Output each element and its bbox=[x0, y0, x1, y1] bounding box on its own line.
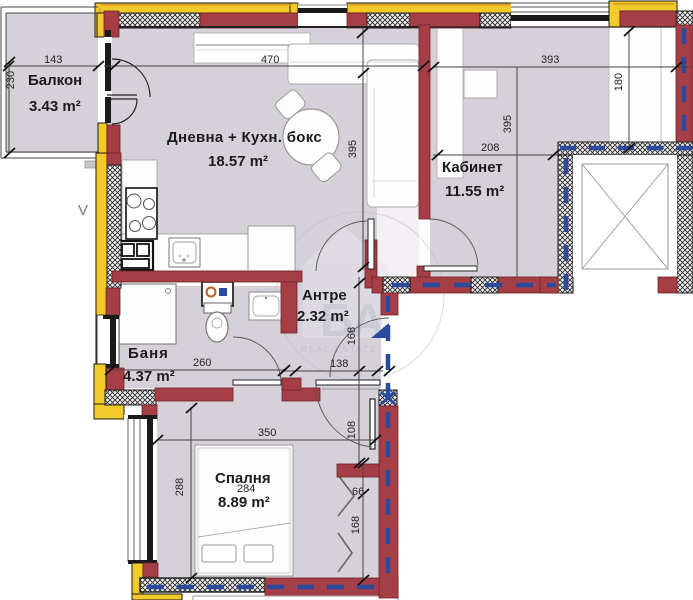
svg-text:393: 393 bbox=[541, 54, 559, 66]
svg-text:168: 168 bbox=[350, 516, 362, 534]
svg-text:11.55 m²: 11.55 m² bbox=[445, 183, 504, 200]
svg-text:395: 395 bbox=[347, 140, 359, 158]
svg-text:66: 66 bbox=[352, 486, 364, 498]
svg-text:260: 260 bbox=[193, 357, 211, 369]
svg-text:208: 208 bbox=[481, 142, 499, 154]
svg-text:168: 168 bbox=[346, 327, 358, 345]
svg-text:143: 143 bbox=[44, 54, 62, 66]
svg-text:230: 230 bbox=[5, 71, 17, 89]
svg-text:Антре: Антре bbox=[302, 287, 347, 304]
svg-text:Кабинет: Кабинет bbox=[442, 159, 503, 176]
svg-text:350: 350 bbox=[258, 427, 276, 439]
svg-text:Балкон: Балкон bbox=[28, 72, 82, 89]
svg-text:Дневна + Кухн. бокс: Дневна + Кухн. бокс bbox=[167, 129, 322, 146]
svg-text:470: 470 bbox=[261, 54, 279, 66]
svg-text:288: 288 bbox=[174, 478, 186, 496]
svg-text:18.57 m²: 18.57 m² bbox=[208, 153, 268, 170]
svg-text:V: V bbox=[78, 202, 88, 219]
svg-text:3.43 m²: 3.43 m² bbox=[29, 98, 81, 115]
svg-text:8.89 m²: 8.89 m² bbox=[218, 494, 270, 511]
svg-text:4.37 m²: 4.37 m² bbox=[123, 368, 175, 385]
svg-text:108: 108 bbox=[346, 421, 358, 439]
svg-text:2.32 m²: 2.32 m² bbox=[297, 308, 349, 325]
svg-text:180: 180 bbox=[613, 73, 625, 91]
svg-text:REAL ESTATE: REAL ESTATE bbox=[301, 345, 378, 354]
svg-text:395: 395 bbox=[502, 115, 514, 133]
svg-text:138: 138 bbox=[330, 358, 348, 370]
svg-text:Баня: Баня bbox=[128, 345, 169, 362]
